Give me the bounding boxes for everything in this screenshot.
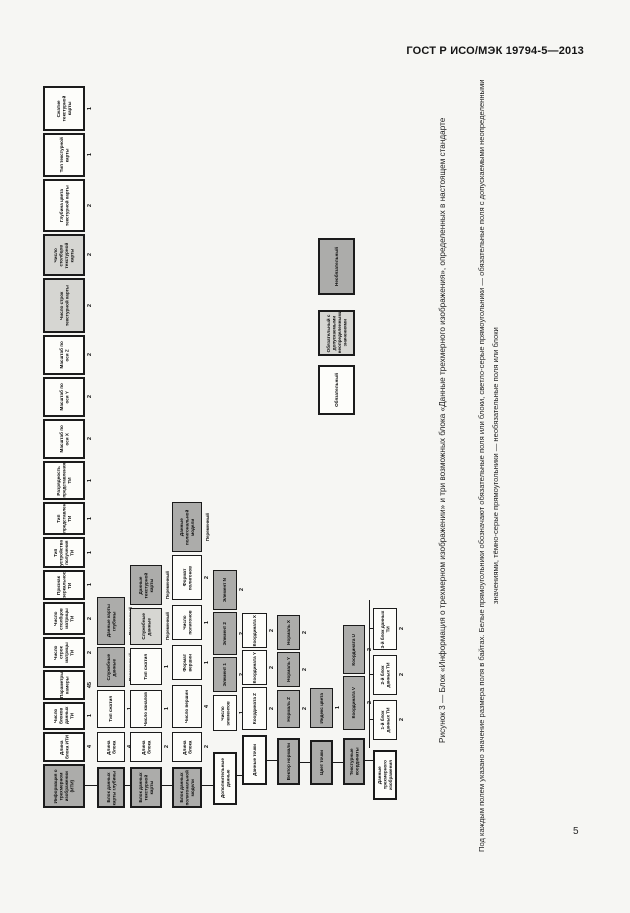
diagram-box-label: Элемент 2 — [222, 622, 228, 645]
diagram-box: 3-й блок данных ТИ — [373, 608, 397, 650]
diagram-box-label: Нормаль Z — [286, 697, 292, 722]
diagram-box: Цвет точки — [310, 740, 333, 785]
diagram-box-label: Тип представления ТИ — [56, 505, 73, 533]
diagram-box: Обязательный с допускаемыми неопределенн… — [318, 310, 355, 356]
diagram-box: Блок данных текстурной карты — [130, 767, 162, 808]
diagram-box-label: Длина блока — [106, 734, 117, 761]
diagram-box-label: Элемент 1 — [222, 663, 228, 686]
diagram-box: Глубина цвета текстурной карты — [43, 179, 85, 232]
field-size-label: 1 — [86, 702, 96, 730]
field-size-label: 1 — [203, 605, 213, 640]
field-size-label: 2 — [203, 555, 213, 600]
connector-line — [267, 760, 277, 761]
diagram-box-label: Служебные данные — [106, 649, 117, 685]
diagram-box-label: Число каналов — [143, 692, 149, 726]
diagram-box: Разрядность представления ТИ — [43, 461, 85, 500]
diagram-box: Данные текстурной карты — [130, 565, 162, 605]
diagram-box: Координата U — [343, 625, 365, 674]
connector-line — [365, 760, 373, 761]
connector-line — [370, 628, 373, 629]
field-size-label: 1 — [86, 133, 96, 177]
document-header-number: ГОСТ Р ИСО/МЭК 19794-5—2013 — [406, 45, 584, 57]
diagram-box-label: Глубина цвета текстурной карты — [59, 182, 70, 229]
field-size-value: 2 — [88, 395, 94, 398]
field-size-label: 4 — [86, 732, 96, 762]
diagram-box: Формат вершин — [172, 645, 202, 680]
diagram-box: Нормаль Y — [277, 652, 300, 687]
field-size-label: 2 — [398, 608, 408, 650]
field-size-label: 1 — [203, 645, 213, 680]
field-size-value: 4 — [88, 745, 94, 748]
diagram-box: Длина блока — [172, 732, 202, 762]
diagram-box-label: Дополнительные данные — [220, 755, 231, 802]
diagram-box-label: Число столбцов матрицы ТИ — [53, 605, 75, 633]
connector-line — [333, 762, 343, 763]
diagram-box: Масштаб по оси Y — [43, 377, 85, 417]
diagram-box: Данные трехмерного изображения — [373, 750, 397, 800]
diagram-box: Данные полигональной модели — [172, 502, 202, 552]
connector-line — [300, 762, 310, 763]
diagram-box: Нормаль X — [277, 615, 300, 650]
diagram-box-label: Сжатие текстурной карты — [56, 89, 73, 128]
diagram-box: Тип сжатия — [130, 648, 162, 685]
figure-caption-text: Рисунок 3 — Блок «Информация о трехмерно… — [436, 85, 450, 775]
diagram-box: Элемент 1 — [213, 657, 237, 692]
diagram-box-label: Необязательный — [334, 247, 340, 286]
field-size-value: 2 — [88, 617, 94, 620]
field-size-value: 4 — [205, 705, 211, 708]
diagram-box-label: Формат полигонов — [182, 557, 193, 598]
diagram-box-label: Данные трехмерного изображения — [377, 753, 394, 797]
diagram-box: Вектор нормали — [277, 738, 300, 785]
diagram-box: Число элементов — [213, 695, 237, 731]
connector-line — [85, 785, 97, 786]
diagram-box: Координата Z — [242, 687, 267, 730]
diagram-box-label: Элемент N — [222, 578, 228, 602]
diagram-box-label: Число блоков данных ТИ — [53, 704, 75, 727]
diagram-box: Число строк текстурной карты — [43, 278, 85, 333]
field-size-value: 2 — [400, 627, 406, 630]
field-size-value: 1 — [88, 551, 94, 554]
field-size-label: 2 — [86, 179, 96, 232]
diagram-box-label: Блок данных полигональной модели — [179, 770, 196, 806]
diagram-box-label: Нормаль Y — [286, 657, 292, 682]
field-size-value: 2 — [205, 745, 211, 748]
field-size-value: 2 — [88, 353, 94, 356]
field-size-label: 2 — [86, 234, 96, 276]
diagram-box: Формат полигонов — [172, 555, 202, 600]
field-size-value: 2 — [88, 204, 94, 207]
diagram-box-label: Текстурные координаты — [349, 741, 360, 782]
diagram-box: Параметры камеры — [43, 670, 85, 700]
diagram-box: Координата V — [343, 676, 365, 730]
diagram-box: Тип устройства получения ТИ — [43, 537, 85, 568]
diagram-box: Координата X — [242, 613, 267, 648]
field-size-label: 2 — [301, 615, 311, 650]
figure-note: Под каждым полем указано значение размер… — [465, 68, 513, 863]
page-number: 5 — [573, 826, 579, 837]
connector-line — [125, 785, 130, 786]
diagram-box-label: Координата Y — [252, 652, 258, 683]
diagram-box-label: Признак зеркальности ТИ — [56, 573, 73, 598]
field-size-label: 2 — [86, 335, 96, 375]
diagram-box-label: Число строк текстурной карты — [59, 281, 70, 330]
diagram-box: Число блоков данных ТИ — [43, 702, 85, 730]
diagram-box-label: Информация о трехмерном изображении (ИТИ… — [53, 767, 75, 805]
field-size-value: 2 — [88, 253, 94, 256]
field-size-value: 1 — [88, 714, 94, 717]
field-size-label: 2 — [398, 700, 408, 740]
diagram-box: Нормаль Z — [277, 690, 300, 728]
field-size-label: 2 — [238, 570, 248, 610]
field-size-label: 1 — [86, 570, 96, 600]
connector-line — [370, 719, 373, 720]
connector-line — [162, 785, 172, 786]
diagram-box-label: Вектор нормали — [286, 743, 292, 780]
diagram-box-label: Обязательный с допускаемыми неопределенн… — [326, 313, 348, 353]
diagram-box-label: Число столбцов текстурной карты — [53, 237, 75, 273]
diagram-box-label: Число вершин — [184, 690, 190, 723]
field-size-value: 2 — [303, 631, 309, 634]
diagram-box-label: Число строк матрицы ТИ — [53, 640, 75, 666]
field-size-label: 1 — [86, 502, 96, 535]
diagram-box: Сжатие текстурной карты — [43, 86, 85, 131]
field-size-value: 2 — [88, 304, 94, 307]
diagram-box: Блок данных карты глубины — [97, 767, 125, 808]
diagram-box-label: Длина блока — [141, 734, 152, 761]
connector-line — [237, 775, 242, 776]
diagram-box-label: Блок данных карты глубины — [106, 770, 117, 806]
diagram-box: Обязательный — [318, 365, 355, 415]
field-size-value: 45 — [88, 682, 94, 688]
diagram-box: 1-й блок данных ТИ — [373, 700, 397, 740]
field-size-value: 1 — [88, 583, 94, 586]
diagram-box-label: Координата V — [351, 687, 357, 718]
diagram-box-label: 1-й блок данных ТИ — [380, 702, 391, 738]
field-size-label: 45 — [86, 670, 96, 700]
diagram-box-label: Обязательный — [334, 373, 340, 407]
field-size-label: 2 — [203, 732, 213, 762]
field-size-value: Переменный — [206, 513, 210, 541]
diagram-box: Дополнительные данные — [213, 752, 237, 805]
diagram-box: Блок данных полигональной модели — [172, 767, 202, 808]
diagram-box-label: Данные текстурной карты — [138, 567, 155, 603]
diagram-box: Число столбцов текстурной карты — [43, 234, 85, 276]
field-size-value: 1 — [165, 665, 171, 668]
field-size-value: 1 — [88, 517, 94, 520]
diagram-box-label: Координата U — [351, 634, 357, 666]
diagram-box: Данные карты глубины — [97, 597, 125, 645]
diagram-box: Признак зеркальности ТИ — [43, 570, 85, 600]
diagram-box-label: Координата X — [252, 615, 258, 646]
diagram-box: Индекс цвета — [310, 688, 333, 728]
diagram-box-label: Длина блока — [182, 734, 193, 761]
diagram-box-label: Данные точки — [252, 744, 258, 776]
field-size-value: 2 — [400, 718, 406, 721]
diagram-box-label: 2-й блок данных ТИ — [380, 657, 391, 693]
diagram-box-label: Длина блока ИТИ — [59, 735, 70, 760]
field-size-label: 2 — [86, 278, 96, 333]
field-size-value: Переменный — [166, 571, 170, 599]
connector-line — [370, 674, 373, 675]
diagram-box-label: Тип текстурной карты — [59, 136, 70, 174]
field-size-label: 4 — [203, 685, 213, 728]
field-size-value: 2 — [205, 576, 211, 579]
field-size-label: 1 — [86, 537, 96, 568]
diagram-box-label: Тип сжатия — [143, 654, 149, 680]
field-size-value: 2 — [88, 651, 94, 654]
diagram-box: Координата Y — [242, 650, 267, 685]
diagram-box: Тип сжатия — [97, 690, 125, 728]
diagram-box: Число столбцов матрицы ТИ — [43, 602, 85, 635]
diagram-box-label: Данные карты глубины — [106, 599, 117, 643]
field-size-value: 1 — [205, 661, 211, 664]
field-size-value: 2 — [240, 588, 246, 591]
diagram-box: Длина блока — [130, 732, 162, 762]
field-size-value: 2 — [165, 745, 171, 748]
diagram-box: Длина блока — [97, 732, 125, 762]
diagram-box: Число каналов — [130, 690, 162, 728]
diagram-box: Масштаб по оси X — [43, 419, 85, 459]
field-size-label: 2 — [301, 652, 311, 687]
figure-caption: Рисунок 3 — Блок «Информация о трехмерно… — [423, 85, 463, 775]
field-size-label: 2 — [86, 377, 96, 417]
field-size-value: 2 — [270, 707, 276, 710]
diagram-box: Число полигонов — [172, 605, 202, 640]
field-size-value: 2 — [270, 666, 276, 669]
diagram-box-label: Масштаб по оси Z — [59, 338, 70, 373]
diagram-box-label: Индекс цвета — [319, 693, 325, 724]
diagram-box-label: Тип устройства получения ТИ — [53, 540, 75, 566]
diagram-box-label: Масштаб по оси X — [59, 422, 70, 457]
field-size-value: 2 — [88, 437, 94, 440]
field-size-value: Переменный — [166, 612, 170, 640]
diagram-box-label: Служебные данные — [141, 610, 152, 644]
diagram-box: Тип представления ТИ — [43, 502, 85, 535]
diagram-box: Элемент 2 — [213, 612, 237, 655]
figure-note-text: Под каждым полем указано значение размер… — [475, 68, 503, 863]
field-size-value: 2 — [270, 629, 276, 632]
diagram-box: Служебные данные — [130, 608, 162, 645]
diagram-box: Число строк матрицы ТИ — [43, 637, 85, 668]
connector-line — [202, 785, 213, 786]
diagram-box-label: Блок данных текстурной карты — [138, 770, 155, 806]
diagram-box-label: Данные полигональной модели — [179, 504, 196, 550]
diagram-box-label: Число элементов — [220, 697, 231, 730]
field-size-label: 2 — [398, 655, 408, 695]
diagram-box: Информация о трехмерном изображении (ИТИ… — [43, 764, 85, 808]
diagram-box-label: Тип сжатия — [108, 696, 114, 722]
field-size-label: 1 — [86, 461, 96, 500]
diagram-box: Элемент N — [213, 570, 237, 610]
diagram-box: Необязательный — [318, 238, 355, 295]
diagram-box: Число вершин — [172, 685, 202, 728]
field-size-label: 2 — [86, 637, 96, 668]
field-size-label: 2 — [86, 602, 96, 635]
diagram-box-label: Цвет точки — [319, 750, 325, 775]
diagram-box: Данные точки — [242, 735, 267, 785]
diagram-box-label: Формат вершин — [182, 647, 193, 679]
field-size-value: 1 — [205, 621, 211, 624]
diagram-box-label: Параметры камеры — [59, 673, 70, 698]
field-size-value: 2 — [400, 673, 406, 676]
diagram-box: Масштаб по оси Z — [43, 335, 85, 375]
diagram-box-label: Разрядность представления ТИ — [56, 464, 73, 498]
diagram-box: Текстурные координаты — [343, 738, 365, 785]
field-size-value: 1 — [88, 107, 94, 110]
diagram-box-label: Координата Z — [252, 693, 258, 724]
diagram-box-label: 3-й блок данных ТИ — [380, 610, 391, 648]
diagram-box: Длина блока ИТИ — [43, 732, 85, 762]
field-size-label: 2 — [86, 419, 96, 459]
field-size-value: 1 — [336, 706, 342, 709]
field-size-label: Переменный — [203, 502, 213, 552]
field-size-value: 1 — [88, 479, 94, 482]
field-size-value: 1 — [88, 153, 94, 156]
field-size-value: 2 — [303, 707, 309, 710]
diagram-box-label: Нормаль X — [286, 620, 292, 645]
field-size-value: 1 — [165, 707, 171, 710]
diagram-box: Служебные данные — [97, 647, 125, 687]
diagram-box-label: Масштаб по оси Y — [59, 380, 70, 415]
field-size-value: 2 — [303, 668, 309, 671]
diagram-box: 2-й блок данных ТИ — [373, 655, 397, 695]
diagram-box-label: Число полигонов — [182, 607, 193, 639]
field-size-label: 1 — [86, 86, 96, 131]
diagram-box: Тип текстурной карты — [43, 133, 85, 177]
